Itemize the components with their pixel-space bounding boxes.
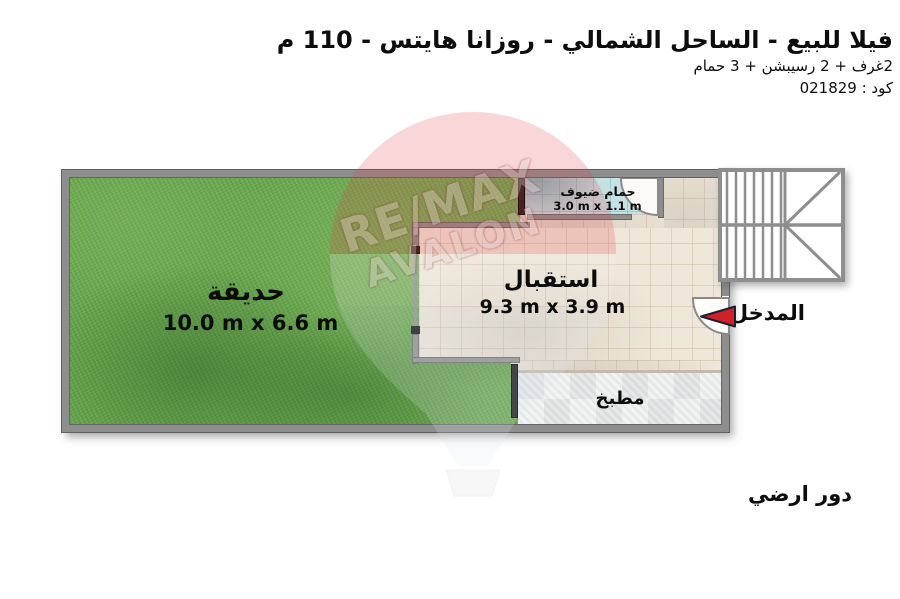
listing-header: فيلا للبيع - الساحل الشمالي - روزانا هاي…: [277, 26, 893, 97]
stairs: [718, 168, 845, 282]
reception-label: استقبال: [491, 267, 611, 293]
listing-code: كود : 021829: [277, 79, 893, 97]
garden-label: حديقة: [181, 277, 311, 307]
guest-bathroom-dimensions: 3.0 m x 1.1 m: [550, 199, 645, 213]
entrance-arrow-icon: [699, 305, 737, 328]
reception-dimensions: 9.3 m x 3.9 m: [470, 296, 635, 318]
garden-dimensions: 10.0 m x 6.6 m: [148, 311, 353, 335]
entrance-label: المدخل: [735, 301, 805, 325]
floor-plan: [62, 168, 843, 432]
listing-subtitle: 2غرف + 2 رسيبشن + 3 حمام: [277, 57, 893, 75]
kitchen-label: مطبخ: [580, 388, 660, 409]
floor-level-label: دور ارضي: [745, 482, 855, 506]
listing-title: فيلا للبيع - الساحل الشمالي - روزانا هاي…: [277, 26, 893, 54]
guest-bathroom-label: حمام ضيوف: [548, 184, 648, 199]
